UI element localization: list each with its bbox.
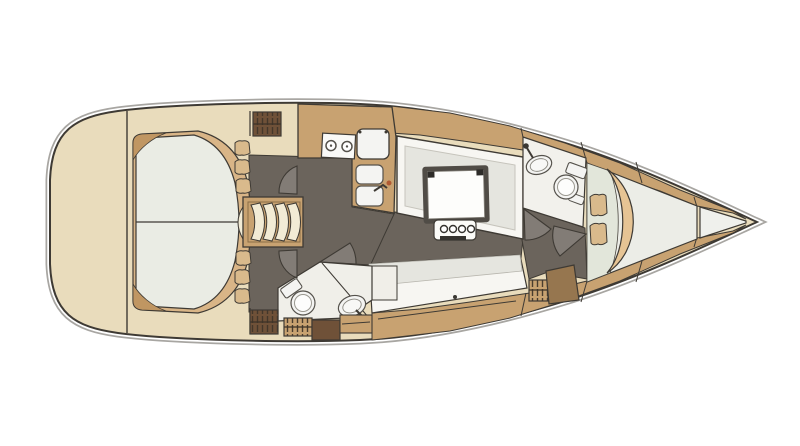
cup-hole (468, 226, 475, 233)
sink-upper (356, 165, 383, 184)
pillow (235, 289, 250, 304)
pillow (590, 223, 607, 245)
saloon-table (422, 165, 489, 224)
pillow (235, 270, 250, 285)
locker-bench-row (340, 315, 372, 333)
toilet-bowl-inner (558, 179, 575, 196)
cabinet-fwd-cabin (546, 265, 579, 304)
basin-faucet-knob (523, 143, 529, 149)
faucet-knob (387, 181, 392, 186)
cup-hole (450, 226, 457, 233)
stove-two-burner (321, 133, 355, 159)
pillow (235, 160, 250, 175)
pillow (590, 194, 607, 216)
icebox-hinge (359, 131, 362, 134)
floorplan-svg (0, 0, 800, 446)
locker-head-louvered (284, 318, 312, 336)
locker-fwd-louvered (529, 280, 548, 301)
companionway (238, 197, 303, 247)
boat-floorplan-image (0, 0, 800, 446)
settee-latch (453, 295, 457, 299)
pillow (235, 141, 250, 156)
table-clip (427, 172, 434, 178)
cabinet-head-dark (312, 320, 340, 340)
bottle-holder (434, 220, 476, 241)
icebox-hinge (385, 131, 388, 134)
pillow (236, 179, 251, 194)
cup-hole (459, 226, 466, 233)
locker-aft-port (253, 112, 281, 136)
locker-aft-starboard (250, 310, 278, 334)
table-top (427, 170, 484, 218)
pillow (236, 251, 251, 266)
settee-end-seat (371, 266, 397, 300)
sink-lower (356, 186, 383, 206)
table-clip (476, 169, 483, 175)
cup-hole (441, 226, 448, 233)
icebox (357, 129, 389, 159)
bottle-holder-bar (440, 236, 466, 241)
toilet-bowl-inner (295, 295, 312, 312)
